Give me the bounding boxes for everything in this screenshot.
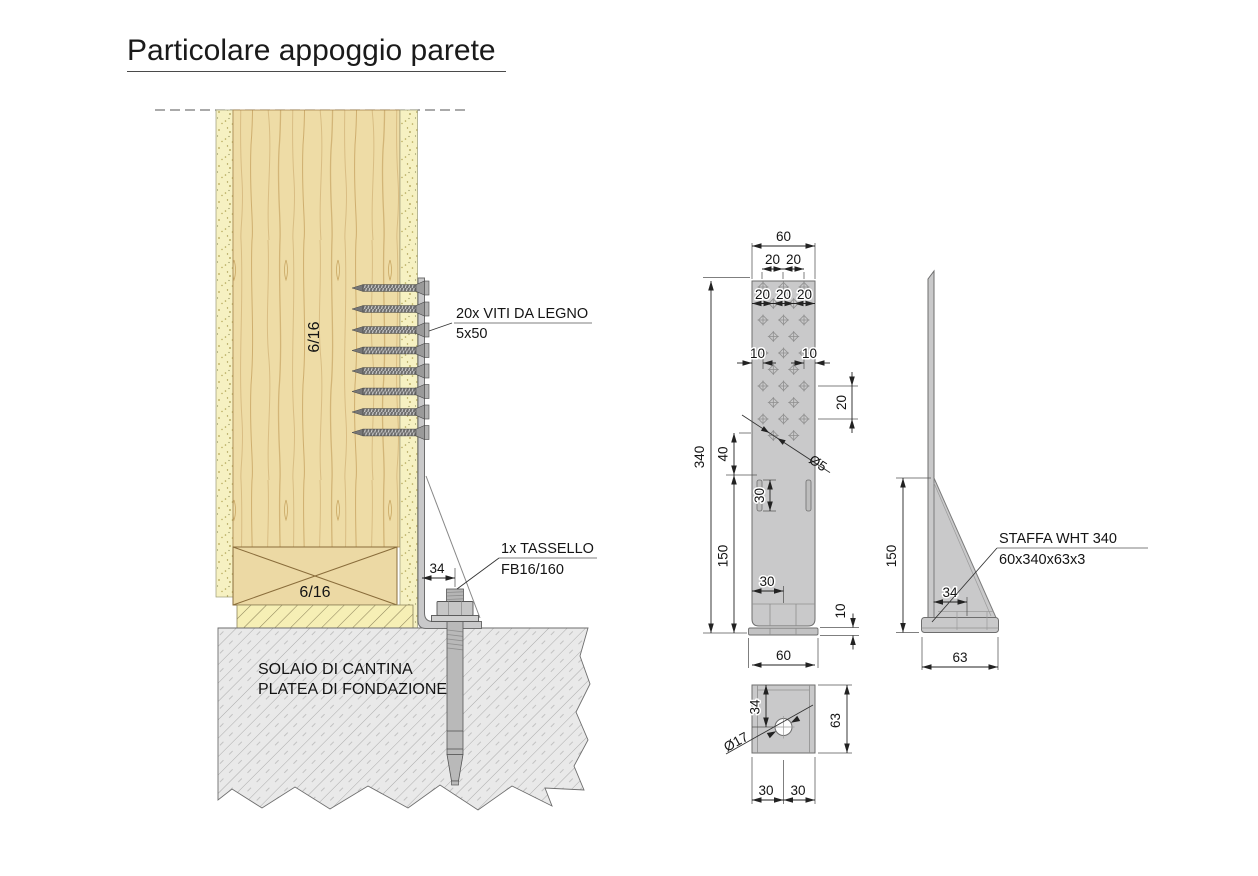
drawing-canvas: Particolare appoggio parete: [0, 0, 1258, 876]
dim-base-width: 60: [776, 648, 791, 663]
sill-gasket-strip: [237, 605, 413, 628]
insulation-strip-left: [216, 110, 233, 597]
section-view: SOLAIO DI CANTINA PLATEA DI FONDAZIONE: [155, 110, 597, 810]
side-view: 150 34 63 STAFFA WHT 340 60x340x63x3: [884, 271, 1148, 670]
dim-hole-dia-large: Ø17: [721, 729, 751, 754]
dim-gusset-height: 150: [884, 545, 899, 568]
dim-triple-2: 20: [776, 287, 791, 302]
side-plate: [928, 271, 934, 618]
dim-front-width: 60: [776, 229, 791, 244]
dim-triple-1: 20: [755, 287, 770, 302]
dim-depth-bottom: 63: [828, 713, 843, 728]
bracket-label-line2: 60x340x63x3: [999, 552, 1085, 568]
dim-lower: 150: [716, 545, 731, 568]
dim-slot: 30: [752, 488, 767, 503]
beam-size-label: 6/16: [299, 584, 330, 601]
technical-drawing: SOLAIO DI CANTINA PLATEA DI FONDAZIONE: [0, 0, 1258, 876]
screws-label-line2: 5x50: [456, 326, 487, 342]
dim-half-1: 30: [758, 783, 773, 798]
anchor-nut: [437, 602, 473, 616]
screws-leader: [429, 323, 452, 331]
anchor-label-line1: 1x TASSELLO: [501, 541, 594, 557]
foundation-label-line2: PLATEA DI FONDAZIONE: [258, 681, 447, 698]
front-view: 60 20 20 20 20 20 10 10: [692, 229, 859, 668]
dim-edge-2: 10: [802, 346, 817, 361]
dim-pair-2: 20: [786, 252, 801, 267]
foundation-label-line1: SOLAIO DI CANTINA: [258, 661, 413, 678]
bottom-view: 34 Ø17 63 30 30: [721, 685, 852, 804]
bracket-label-line1: STAFFA WHT 340: [999, 531, 1117, 547]
dim-row-gap: 20: [834, 395, 849, 410]
dim-anchor-offset: 34: [429, 561, 445, 576]
dim-hole-offset-bottom: 34: [748, 699, 763, 715]
dim-edge-1: 10: [750, 346, 765, 361]
dim-base-offset: 30: [759, 574, 774, 589]
dim-hole-offset-side: 34: [942, 585, 958, 600]
dim-pair-1: 20: [765, 252, 780, 267]
dim-height: 340: [692, 446, 707, 469]
dim-upper: 40: [716, 446, 731, 461]
screws-label-line1: 20x VITI DA LEGNO: [456, 306, 588, 322]
anchor-washer: [432, 616, 479, 622]
bracket-slot-right: [806, 480, 811, 511]
panel-size-label: 6/16: [306, 321, 323, 352]
dim-half-2: 30: [790, 783, 805, 798]
dim-triple-3: 20: [797, 287, 812, 302]
anchor-label-line2: FB16/160: [501, 562, 564, 578]
dim-base-thickness: 10: [833, 603, 848, 618]
dim-depth-side: 63: [952, 650, 967, 665]
foundation-slab: [218, 628, 590, 810]
bracket-front-base-edge: [749, 628, 819, 635]
